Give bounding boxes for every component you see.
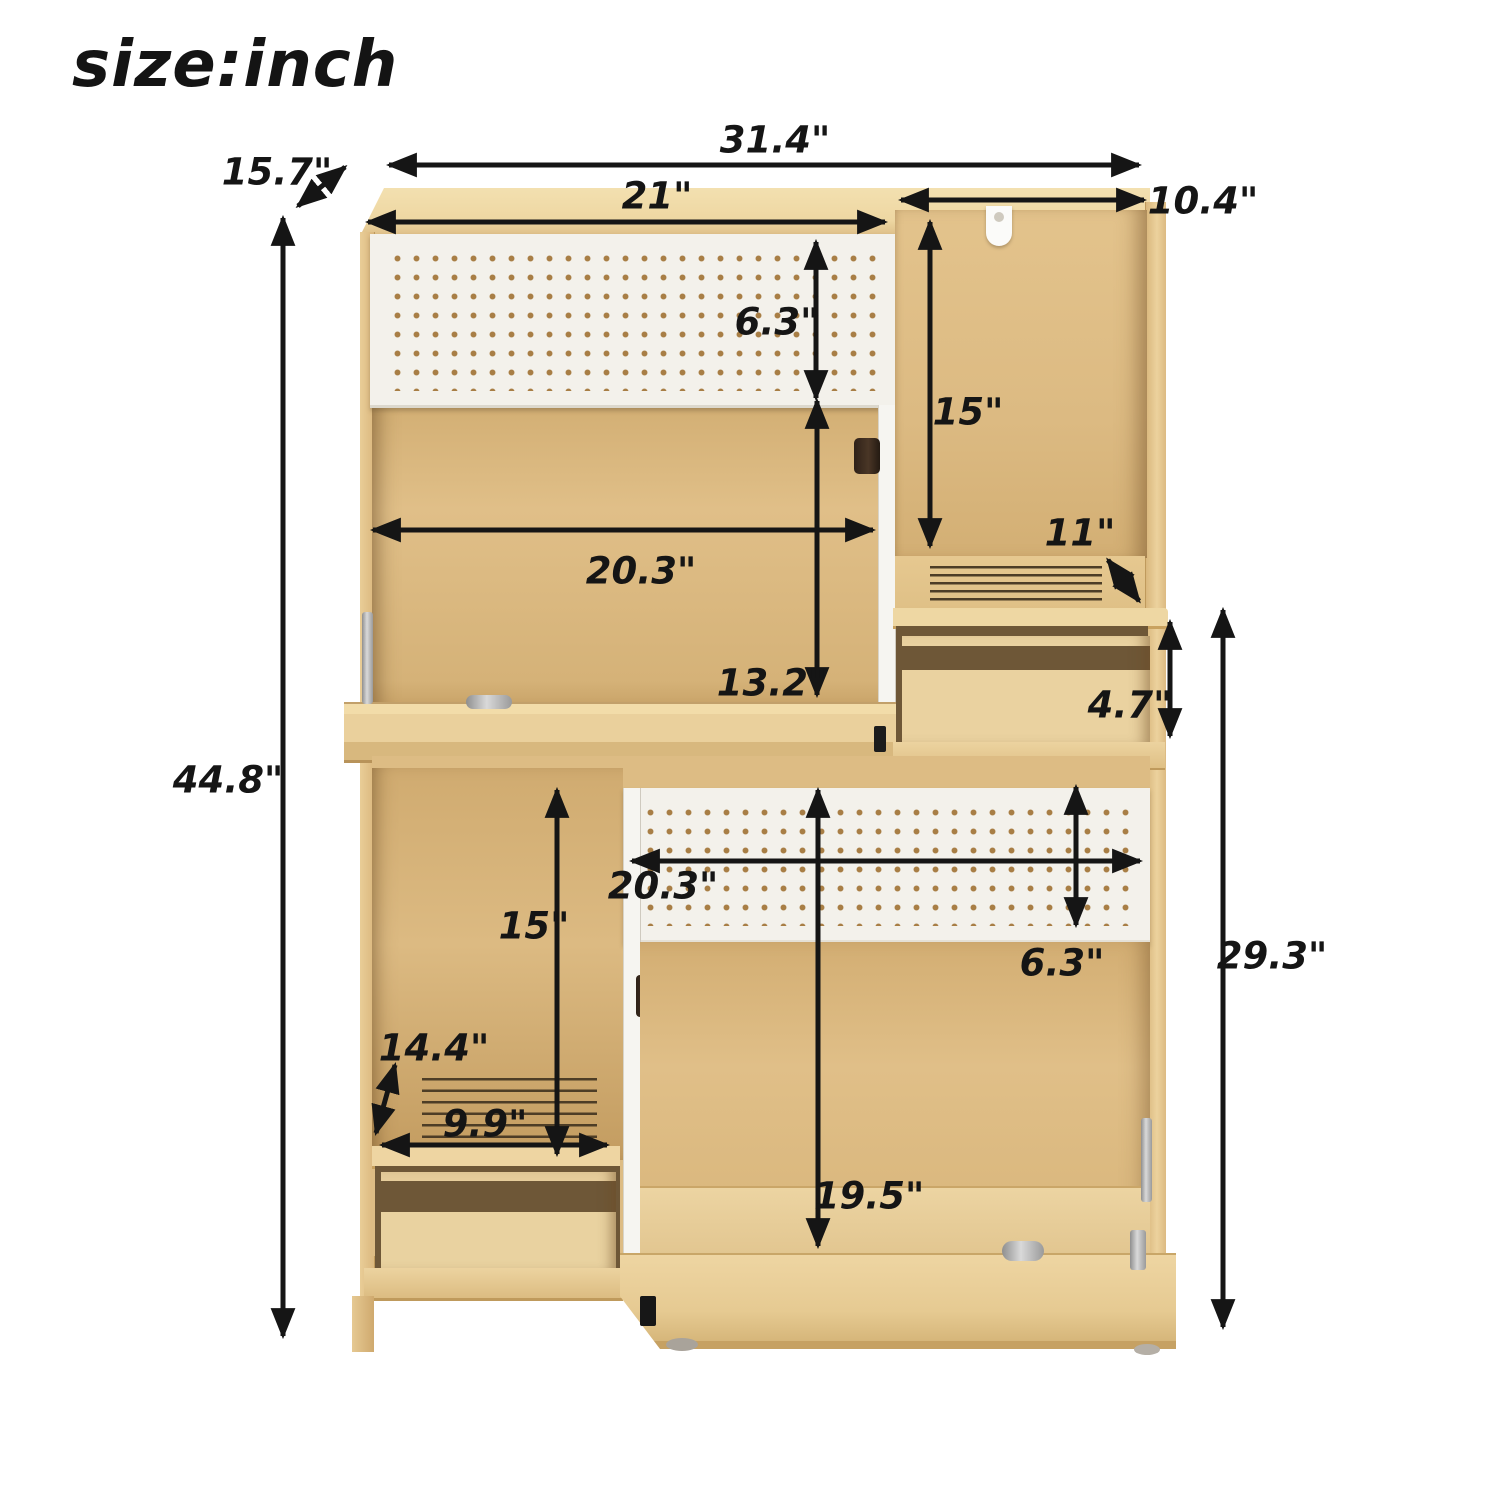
dim-label-lower-section-height: 29.3" (1217, 935, 1328, 978)
dim-label-overall-width: 31.4" (720, 119, 831, 162)
dim-label-upper-right-inner-height: 15" (933, 391, 1004, 434)
dim-label-lower-inner-height: 19.5" (814, 1175, 925, 1218)
dim-label-overall-height: 44.8" (173, 759, 284, 802)
dim-label-hutch-left-width: 21" (622, 175, 693, 218)
dim-label-right-drawer-height: 4.7" (1088, 684, 1173, 727)
dim-label-hutch-right-width: 10.4" (1148, 180, 1259, 223)
dim-arrow-lower-shelf-depth (376, 1065, 395, 1133)
dim-label-lower-shelf-depth: 14.4" (379, 1027, 490, 1070)
dimension-arrows (0, 0, 1500, 1500)
dim-label-upper-inner-width: 20.3" (586, 550, 697, 593)
dim-label-lower-shelf-width: 9.9" (443, 1103, 528, 1146)
dim-label-lower-pegboard-height: 6.3" (1020, 942, 1105, 985)
dim-label-depth: 15.7" (222, 151, 333, 194)
dim-label-right-shelf-depth: 11" (1045, 512, 1116, 555)
dim-label-upper-pegboard-height: 6.3" (735, 301, 820, 344)
product-dimension-diagram: size:inch (0, 0, 1500, 1500)
dim-label-lower-left-inner-height: 15" (499, 905, 570, 948)
dim-arrow-right-shelf-depth (1108, 560, 1139, 601)
dim-label-upper-inner-height: 13.2" (717, 662, 828, 705)
dim-label-lower-inner-width: 20.3" (608, 865, 719, 908)
